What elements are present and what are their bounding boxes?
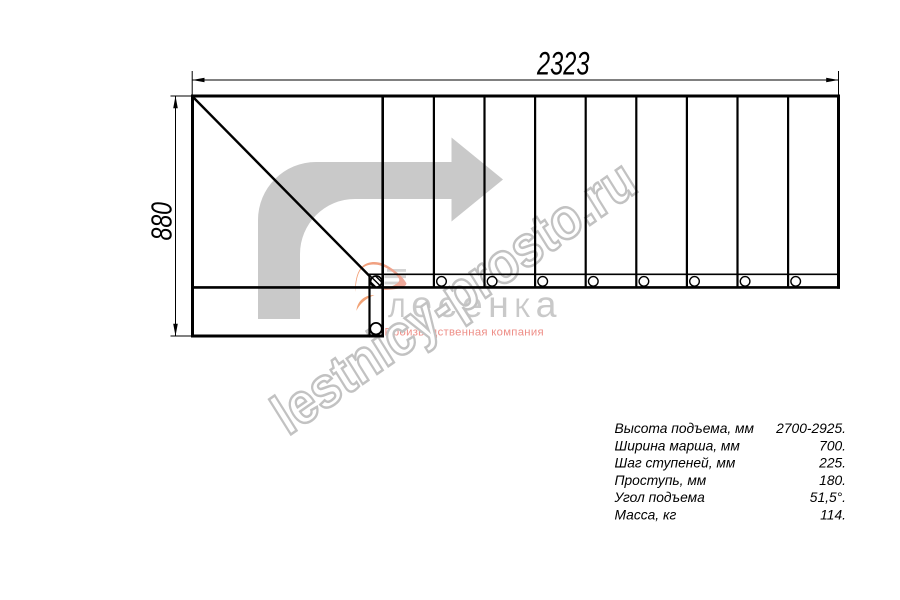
svg-text:114.: 114. xyxy=(820,508,846,523)
svg-text:180.: 180. xyxy=(819,473,846,488)
svg-text:Шаг ступеней, мм: Шаг ступеней, мм xyxy=(615,456,736,471)
svg-text:Ширина марша, мм: Ширина марша, мм xyxy=(615,438,741,453)
svg-text:51,5°.: 51,5°. xyxy=(810,490,846,505)
svg-text:2323: 2323 xyxy=(536,46,589,82)
svg-text:225.: 225. xyxy=(818,456,846,471)
svg-text:2700-2925.: 2700-2925. xyxy=(775,421,846,436)
svg-text:Высота подъема, мм: Высота подъема, мм xyxy=(615,421,755,436)
svg-text:700.: 700. xyxy=(819,438,846,453)
svg-text:880: 880 xyxy=(147,202,179,241)
svg-text:Угол подъема: Угол подъема xyxy=(614,490,706,505)
svg-text:Проступь, мм: Проступь, мм xyxy=(615,473,707,488)
svg-text:Масса, кг: Масса, кг xyxy=(615,508,677,523)
